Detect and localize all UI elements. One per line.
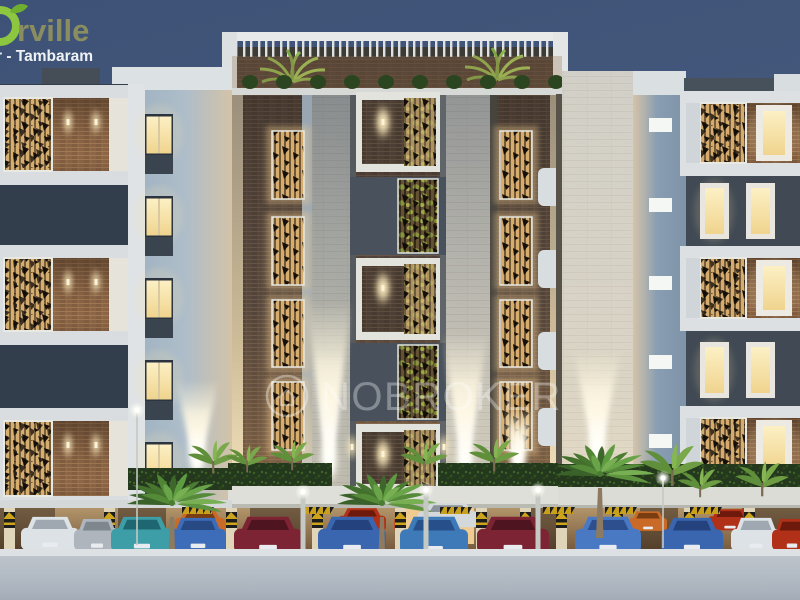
- svg-text:r - Tambaram: r - Tambaram: [0, 48, 93, 65]
- svg-text:rville: rville: [17, 13, 89, 48]
- svg-text:NOBROKER: NOBROKER: [321, 375, 562, 419]
